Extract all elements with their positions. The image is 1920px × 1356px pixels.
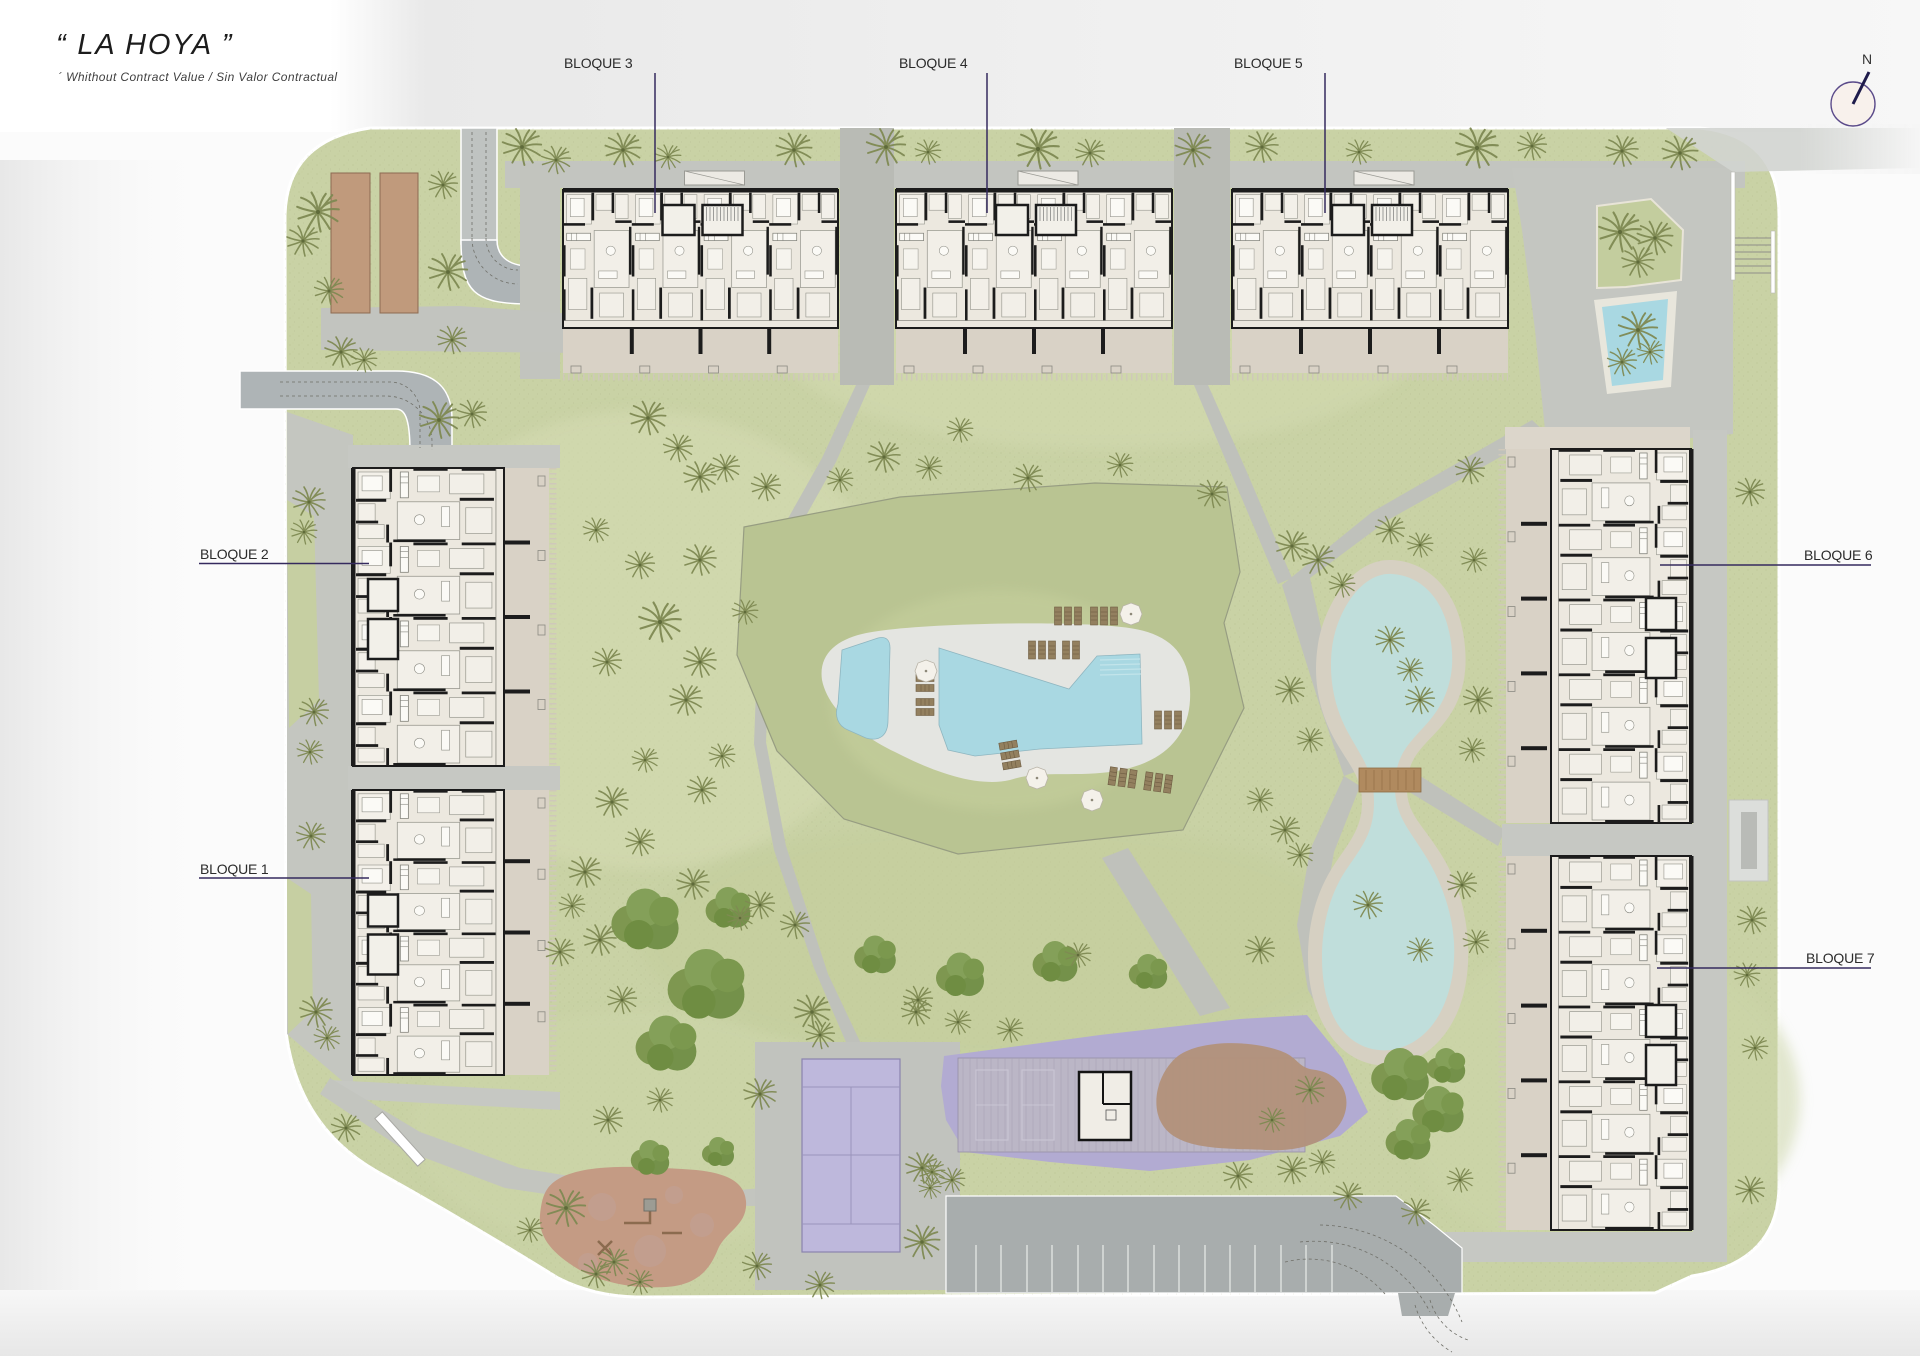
svg-text:BLOQUE 3: BLOQUE 3	[564, 55, 633, 71]
svg-text:BLOQUE 5: BLOQUE 5	[1234, 55, 1303, 71]
svg-text:N: N	[1862, 51, 1872, 67]
svg-text:BLOQUE 6: BLOQUE 6	[1804, 547, 1873, 563]
svg-text:BLOQUE 1: BLOQUE 1	[200, 861, 269, 877]
svg-text:´ Whithout Contract Value / Si: ´ Whithout Contract Value / Sin Valor Co…	[58, 70, 338, 84]
svg-text:“ LA HOYA ”: “ LA HOYA ”	[56, 29, 233, 61]
svg-text:BLOQUE 4: BLOQUE 4	[899, 55, 968, 71]
svg-text:BLOQUE 7: BLOQUE 7	[1806, 950, 1875, 966]
svg-text:BLOQUE 2: BLOQUE 2	[200, 546, 269, 562]
